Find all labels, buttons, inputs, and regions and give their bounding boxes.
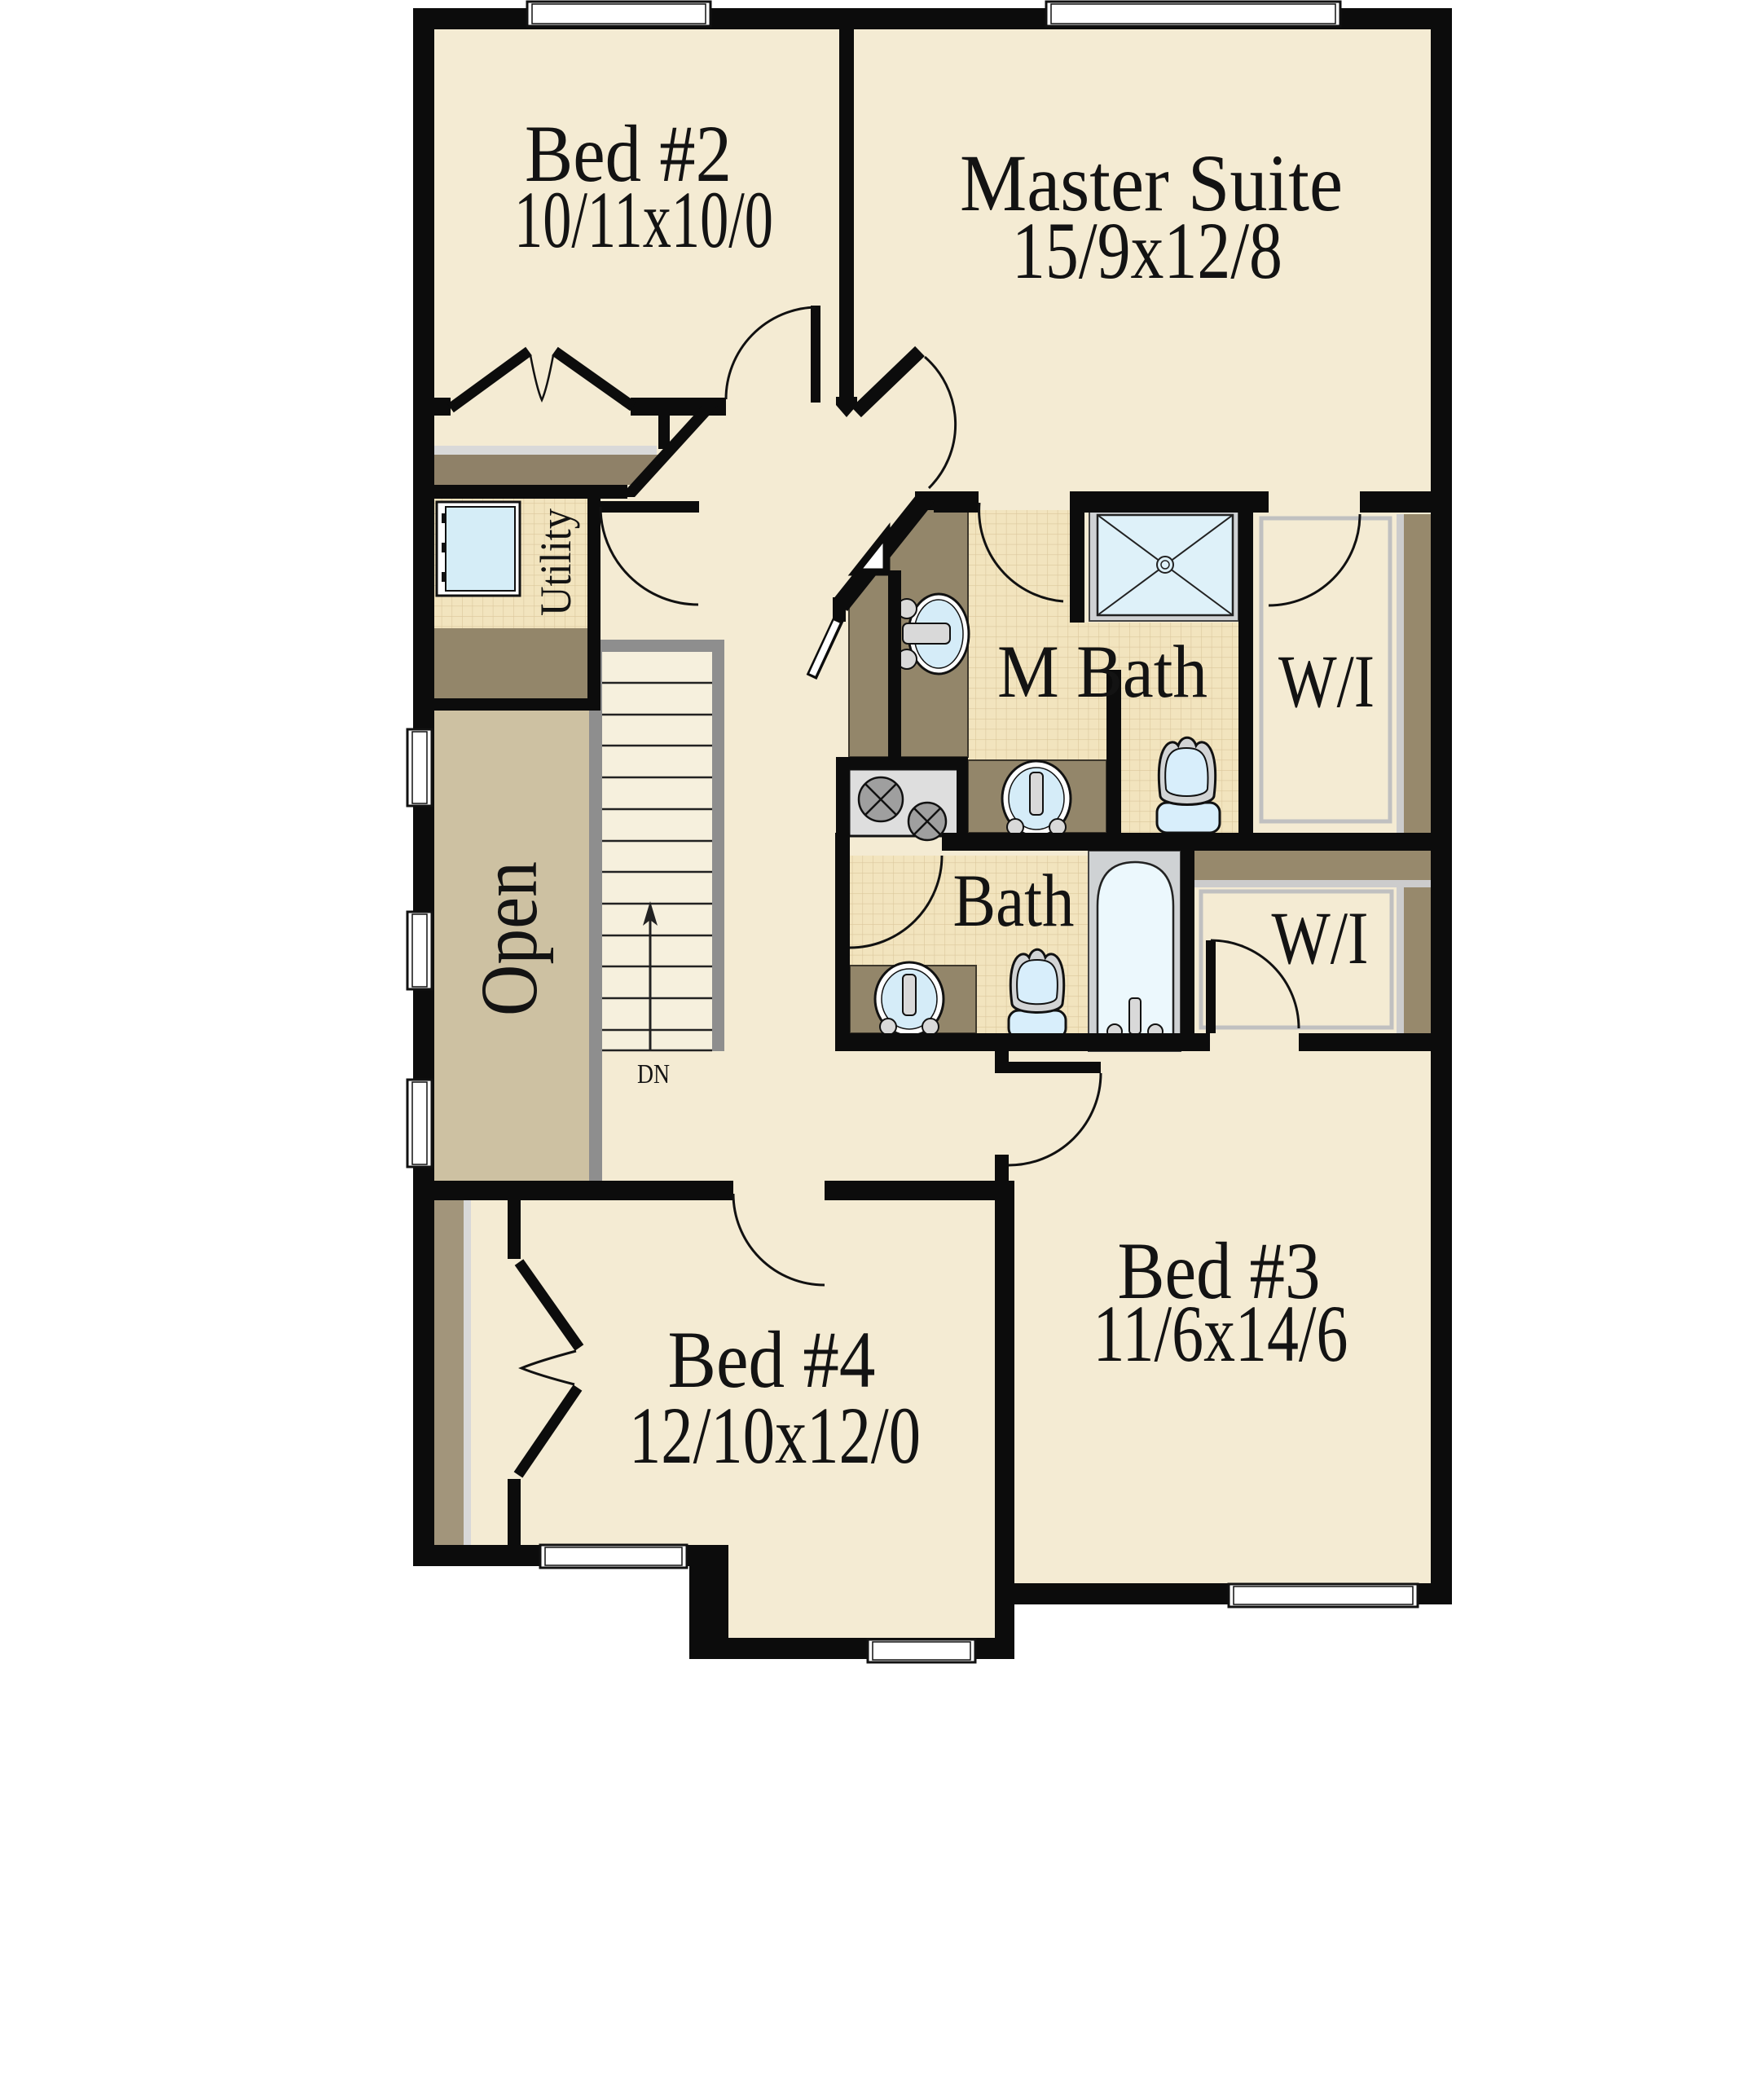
svg-text:Open: Open	[464, 861, 554, 1016]
svg-text:12/10x12/0: 12/10x12/0	[629, 1390, 921, 1481]
svg-text:10/11x10/0: 10/11x10/0	[514, 174, 773, 265]
svg-text:W/I: W/I	[1272, 896, 1369, 979]
svg-text:W/I: W/I	[1278, 640, 1375, 723]
svg-text:DN: DN	[637, 1059, 670, 1089]
svg-text:Bath: Bath	[953, 859, 1075, 942]
svg-text:Utility: Utility	[531, 508, 580, 616]
svg-text:11/6x14/6: 11/6x14/6	[1093, 1288, 1348, 1379]
svg-text:15/9x12/8: 15/9x12/8	[1012, 205, 1282, 296]
svg-text:M Bath: M Bath	[997, 630, 1208, 713]
